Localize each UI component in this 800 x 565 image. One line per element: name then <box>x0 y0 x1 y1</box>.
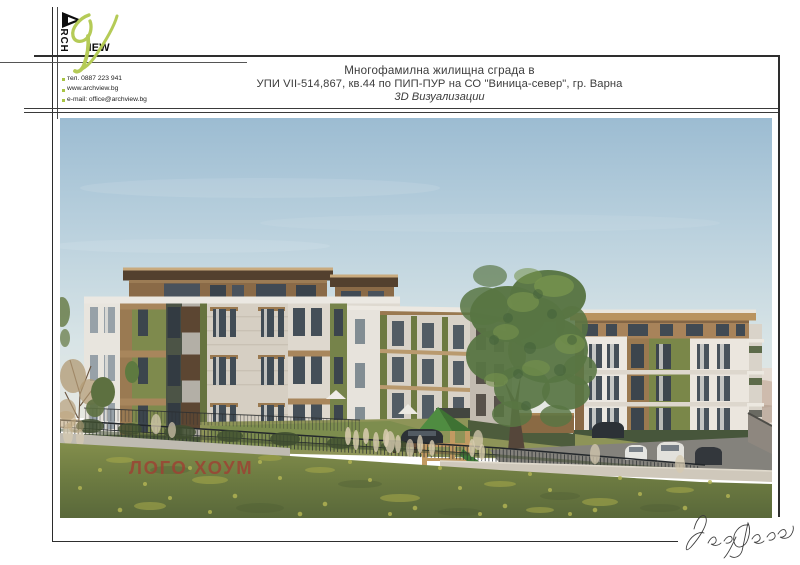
svg-text:RCH: RCH <box>58 29 69 53</box>
svg-text:ЛОГО ХОУМ: ЛОГО ХОУМ <box>129 457 253 478</box>
